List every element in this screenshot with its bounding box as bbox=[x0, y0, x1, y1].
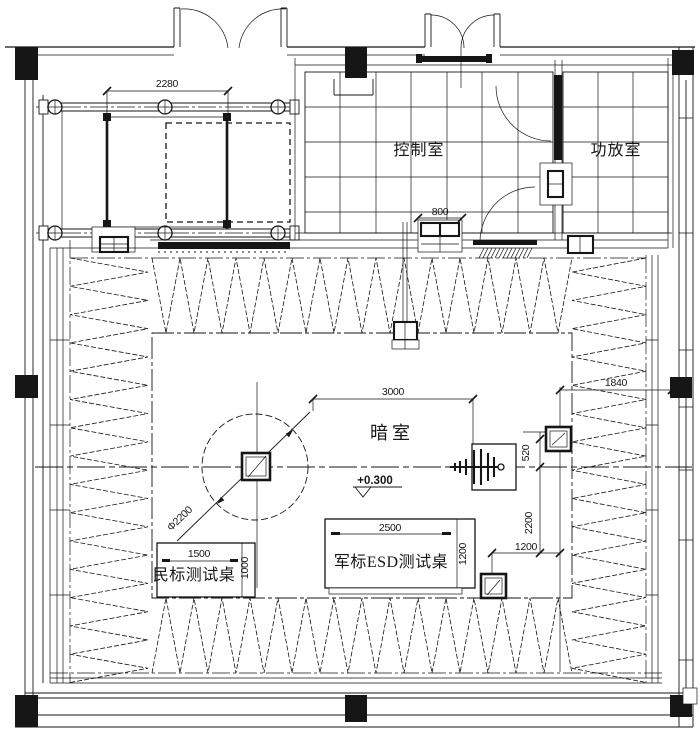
floor-plan-page: 2280 控制室 功放室 bbox=[0, 0, 700, 733]
dim-520-text: 520 bbox=[520, 444, 532, 461]
divider-door-leaf bbox=[554, 75, 562, 160]
absorber-lining bbox=[70, 258, 646, 683]
dim-3000-text: 3000 bbox=[382, 386, 405, 398]
door-arc bbox=[480, 187, 535, 242]
dim-1000-text: 1000 bbox=[239, 556, 251, 579]
sliding-shield-door-assembly: 2280 bbox=[36, 78, 300, 252]
column-top-left bbox=[15, 47, 38, 80]
antenna-elements bbox=[455, 449, 494, 485]
column-left-mid bbox=[15, 375, 38, 398]
column-top-mid bbox=[345, 47, 367, 78]
divider-shield-device bbox=[540, 163, 572, 205]
entrance-double-door-right bbox=[416, 14, 500, 88]
door-leaf-arc bbox=[181, 9, 286, 48]
door-threshold bbox=[421, 56, 487, 62]
log-periodic-antenna bbox=[450, 444, 516, 490]
chamber-north-wall: 800 bbox=[50, 187, 672, 258]
door-panel-closed bbox=[62, 111, 231, 229]
camera-box-bottom bbox=[481, 553, 506, 598]
bottom-right-notch bbox=[683, 688, 697, 704]
turntable: Φ2200 bbox=[165, 412, 310, 541]
esd-test-table: 2500 1200 军标ESD测试桌 bbox=[325, 519, 475, 594]
antenna-mast bbox=[392, 222, 419, 349]
amplifier-room-label: 功放室 bbox=[590, 141, 641, 159]
esd-table-label: 军标ESD测试桌 bbox=[334, 553, 448, 571]
door-jambs bbox=[174, 8, 287, 47]
absorbers-top bbox=[152, 258, 572, 333]
room-divider-wall bbox=[496, 60, 572, 240]
absorbers-left bbox=[70, 258, 148, 683]
dim-1500-text: 1500 bbox=[188, 548, 211, 560]
dim-2200-text: 2200 bbox=[523, 511, 535, 534]
dim-2280-text: 2280 bbox=[156, 78, 179, 90]
column-bottom-mid bbox=[345, 695, 367, 722]
column-top-right bbox=[672, 50, 694, 75]
absorbers-bottom bbox=[152, 598, 572, 673]
chamber-shield-walls bbox=[50, 240, 662, 683]
amplifier-room-feedthrough bbox=[568, 236, 593, 253]
floor-plan-drawing: 2280 控制室 功放室 bbox=[0, 0, 700, 733]
turntable-diameter-label: Φ2200 bbox=[165, 504, 195, 534]
civil-test-table: 1500 1000 民标测试桌 bbox=[153, 543, 255, 597]
door-leaf-arc bbox=[431, 15, 494, 48]
civil-table-label: 民标测试桌 bbox=[153, 566, 236, 584]
door-jambs bbox=[425, 14, 500, 47]
dim-1840-text: 1840 bbox=[605, 377, 628, 389]
chamber-label: 暗室 bbox=[370, 423, 414, 443]
dim-1200-esd-text: 1200 bbox=[457, 542, 469, 565]
floor-level-marker: +0.300 bbox=[353, 475, 402, 497]
column-bottom-left bbox=[15, 695, 38, 727]
dim-800: 800 bbox=[414, 206, 466, 222]
divider-door-arc bbox=[496, 86, 551, 141]
floor-level-text: +0.300 bbox=[357, 475, 393, 487]
dim-1200-chain-text: 1200 bbox=[515, 541, 538, 553]
column-right-mid bbox=[670, 377, 692, 398]
dim-2500-text: 2500 bbox=[379, 522, 402, 534]
control-room-shield-door bbox=[473, 187, 537, 258]
dim-800-text: 800 bbox=[432, 206, 449, 218]
threshold-hatch bbox=[479, 248, 532, 258]
control-room-label: 控制室 bbox=[393, 141, 444, 159]
pass-window bbox=[418, 220, 462, 252]
entrance-double-door-left bbox=[174, 8, 287, 48]
absorbers-right bbox=[572, 258, 646, 683]
amplifier-room: 功放室 bbox=[563, 72, 668, 233]
